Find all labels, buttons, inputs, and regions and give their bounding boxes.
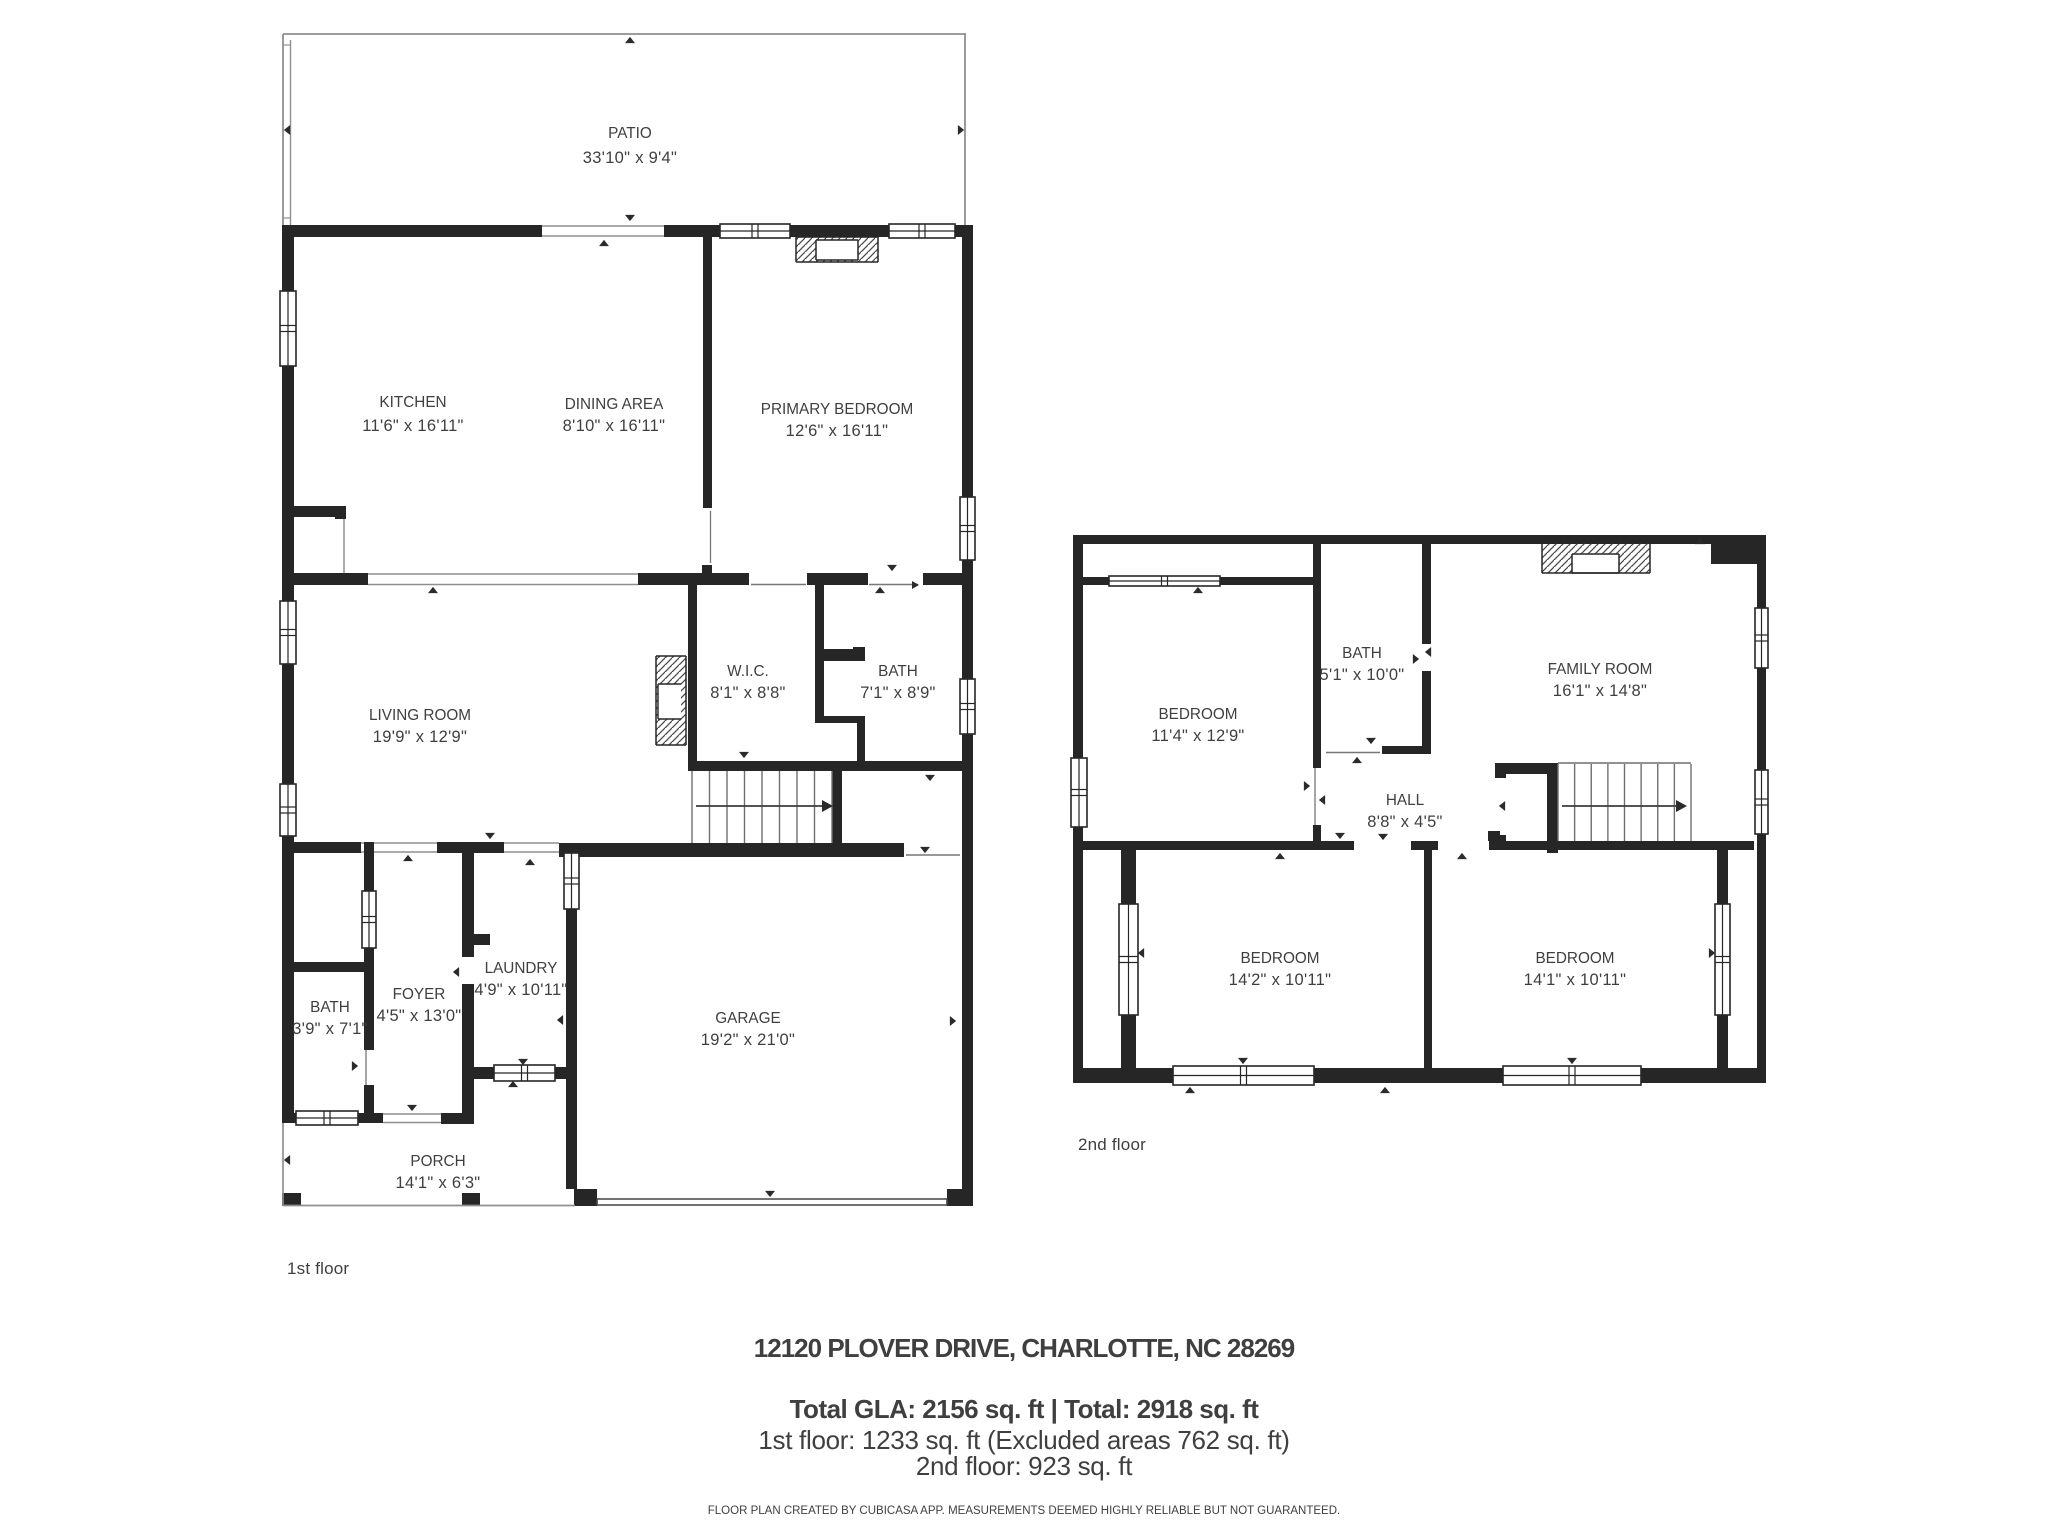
svg-text:14'2" x 10'11": 14'2" x 10'11" [1229, 971, 1332, 989]
svg-text:1st floor: 1st floor [287, 1259, 349, 1278]
svg-text:DINING AREA: DINING AREA [565, 396, 664, 413]
svg-text:PORCH: PORCH [410, 1153, 465, 1170]
svg-text:FOYER: FOYER [393, 986, 446, 1003]
svg-text:7'1" x 8'9": 7'1" x 8'9" [860, 684, 935, 702]
svg-text:PATIO: PATIO [608, 125, 652, 142]
svg-text:FLOOR PLAN CREATED BY CUBICASA: FLOOR PLAN CREATED BY CUBICASA APP. MEAS… [708, 1505, 1340, 1517]
svg-text:12'6" x 16'11": 12'6" x 16'11" [786, 422, 889, 440]
svg-text:16'1" x 14'8": 16'1" x 14'8" [1553, 682, 1647, 700]
svg-text:14'1" x 10'11": 14'1" x 10'11" [1524, 971, 1627, 989]
svg-text:2nd floor: 923 sq. ft: 2nd floor: 923 sq. ft [916, 1451, 1133, 1481]
svg-text:BATH: BATH [878, 663, 918, 680]
svg-text:12120 PLOVER DRIVE, CHARLOTTE,: 12120 PLOVER DRIVE, CHARLOTTE, NC 28269 [754, 1333, 1295, 1363]
svg-text:19'2" x 21'0": 19'2" x 21'0" [701, 1031, 795, 1049]
svg-text:LIVING ROOM: LIVING ROOM [369, 707, 471, 724]
svg-text:8'1" x 8'8": 8'1" x 8'8" [710, 684, 785, 702]
svg-text:33'10" x 9'4": 33'10" x 9'4" [583, 149, 677, 167]
svg-text:BEDROOM: BEDROOM [1158, 706, 1237, 723]
svg-text:BEDROOM: BEDROOM [1240, 950, 1319, 967]
svg-text:Total GLA: 2156 sq. ft | Total: Total GLA: 2156 sq. ft | Total: 2918 sq.… [790, 1394, 1260, 1424]
svg-text:8'10" x 16'11": 8'10" x 16'11" [563, 417, 666, 435]
svg-text:BEDROOM: BEDROOM [1535, 950, 1614, 967]
svg-text:2nd floor: 2nd floor [1078, 1135, 1146, 1154]
svg-text:4'5" x 13'0": 4'5" x 13'0" [377, 1007, 462, 1025]
svg-text:FAMILY ROOM: FAMILY ROOM [1548, 661, 1653, 678]
svg-text:BATH: BATH [1342, 645, 1382, 662]
svg-text:11'6" x 16'11": 11'6" x 16'11" [362, 417, 463, 435]
svg-text:11'4" x 12'9": 11'4" x 12'9" [1151, 727, 1244, 745]
svg-text:8'8" x 4'5": 8'8" x 4'5" [1367, 813, 1442, 831]
svg-text:3'9" x 7'1": 3'9" x 7'1" [292, 1020, 367, 1038]
svg-text:14'1" x 6'3": 14'1" x 6'3" [396, 1174, 481, 1192]
svg-text:BATH: BATH [310, 999, 350, 1016]
svg-text:GARAGE: GARAGE [715, 1010, 780, 1027]
svg-text:5'1" x 10'0": 5'1" x 10'0" [1320, 666, 1405, 684]
svg-text:19'9" x 12'9": 19'9" x 12'9" [373, 728, 467, 746]
svg-text:KITCHEN: KITCHEN [379, 394, 446, 411]
svg-text:HALL: HALL [1386, 792, 1424, 809]
svg-text:W.I.C.: W.I.C. [727, 663, 769, 680]
svg-text:LAUNDRY: LAUNDRY [485, 960, 558, 977]
svg-text:PRIMARY BEDROOM: PRIMARY BEDROOM [761, 401, 913, 418]
svg-text:4'9" x 10'11": 4'9" x 10'11" [474, 981, 567, 999]
